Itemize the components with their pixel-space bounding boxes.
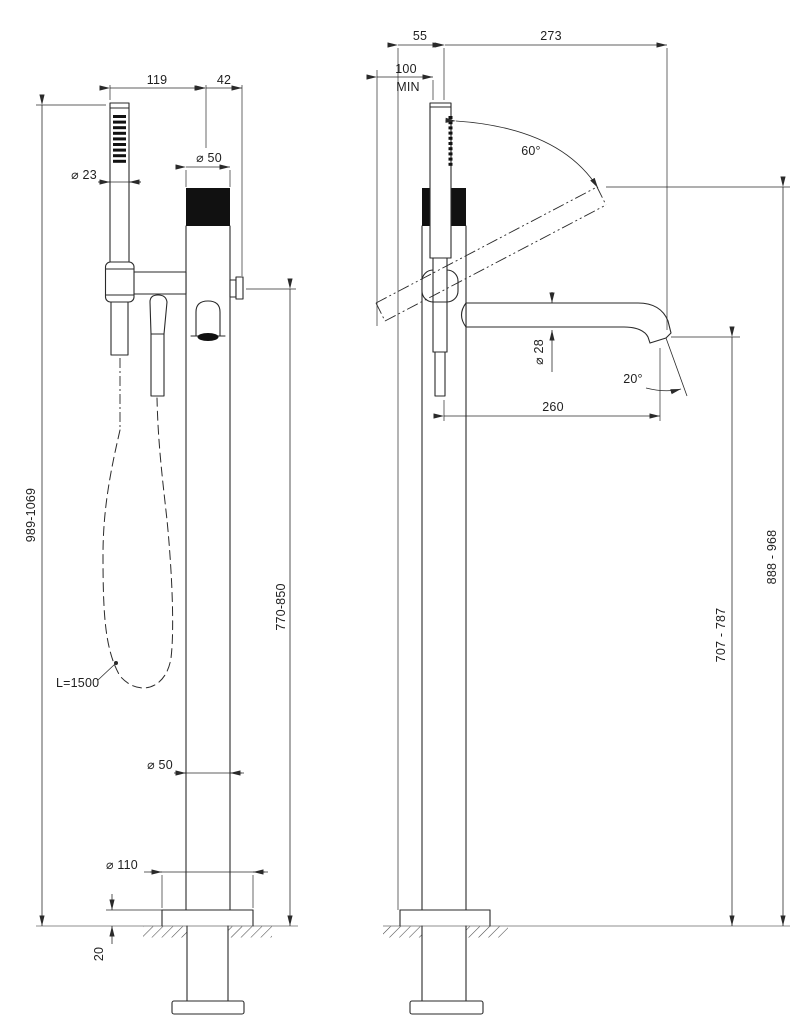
dim-front-base-dia: ⌀ 110: [106, 858, 138, 872]
side-handshower-handle: [433, 302, 447, 396]
front-column: [186, 188, 243, 910]
dim-side-max-reach: 273: [540, 29, 561, 43]
side-floor-hatch-right: [466, 927, 508, 938]
front-knurled-handle: [186, 188, 230, 226]
front-under-floor-flange: [172, 1001, 244, 1014]
side-under-floor-flange: [410, 1001, 483, 1014]
technical-drawing-sheet: 119 42 ⌀ 23 ⌀ 50 989-1069 770-850 L=1500: [0, 0, 807, 1024]
side-spout-outlet: [650, 338, 666, 343]
dim-front-handle-dia: ⌀ 50: [196, 151, 222, 165]
dim-front-handshower-dia: ⌀ 23: [71, 168, 97, 182]
dim-front-column-dia: ⌀ 50: [147, 758, 173, 772]
dim-side-flange-to-axis: 55: [413, 29, 427, 43]
spout-stream-line: [666, 338, 687, 396]
dim-front-overall-height: 989-1069: [24, 488, 38, 542]
front-floor-hatch-right: [228, 927, 272, 938]
dim-side-raised-handshower-height: 888 - 968: [765, 530, 779, 585]
front-view: 119 42 ⌀ 23 ⌀ 50 989-1069 770-850 L=1500: [24, 73, 298, 1014]
dim-front-body-height: 770-850: [274, 583, 288, 630]
front-diverter-knob: [230, 277, 243, 299]
side-spout: [462, 303, 688, 396]
front-hose: [103, 398, 173, 688]
side-handshower: [422, 103, 458, 396]
front-handshower: [103, 103, 186, 688]
front-hose-connector: [150, 295, 167, 396]
front-floor-hatch-left: [143, 927, 187, 938]
dim-side-wall-clearance: 100: [395, 62, 416, 76]
dim-side-spout-outlet-height: 707 - 787: [714, 608, 728, 663]
front-spout-outlet: [198, 333, 219, 341]
front-handshower-spray-face: [113, 115, 126, 163]
side-view: 55 273 100 MIN 60° ⌀ 28 20° 260: [376, 29, 790, 1014]
front-dimensions: 119 42 ⌀ 23 ⌀ 50 989-1069 770-850 L=1500: [24, 73, 296, 961]
dim-front-base-plate-height: 20: [92, 947, 106, 961]
dim-side-outlet-angle: 20°: [623, 372, 643, 386]
front-handshower-handle: [111, 302, 128, 355]
dim-side-handshower-angle: 60°: [521, 144, 541, 158]
side-handshower-raised-phantom: [376, 187, 606, 321]
side-knurled-handle: [451, 188, 466, 226]
dim-side-spout-dia: ⌀ 28: [532, 339, 546, 365]
dim-side-wall-clearance-note: MIN: [396, 80, 420, 94]
front-spout-end: [191, 301, 225, 341]
dim-front-span-right: 42: [217, 73, 231, 87]
dim-front-span-left: 119: [147, 73, 168, 87]
dim-side-spout-reach: 260: [542, 400, 563, 414]
dim-front-hose-length: L=1500: [56, 676, 99, 690]
technical-drawing: 119 42 ⌀ 23 ⌀ 50 989-1069 770-850 L=1500: [0, 0, 807, 1024]
front-handshower-holder: [106, 262, 187, 302]
side-handshower-holder: [422, 258, 458, 302]
side-floor-hatch-left: [383, 927, 422, 938]
